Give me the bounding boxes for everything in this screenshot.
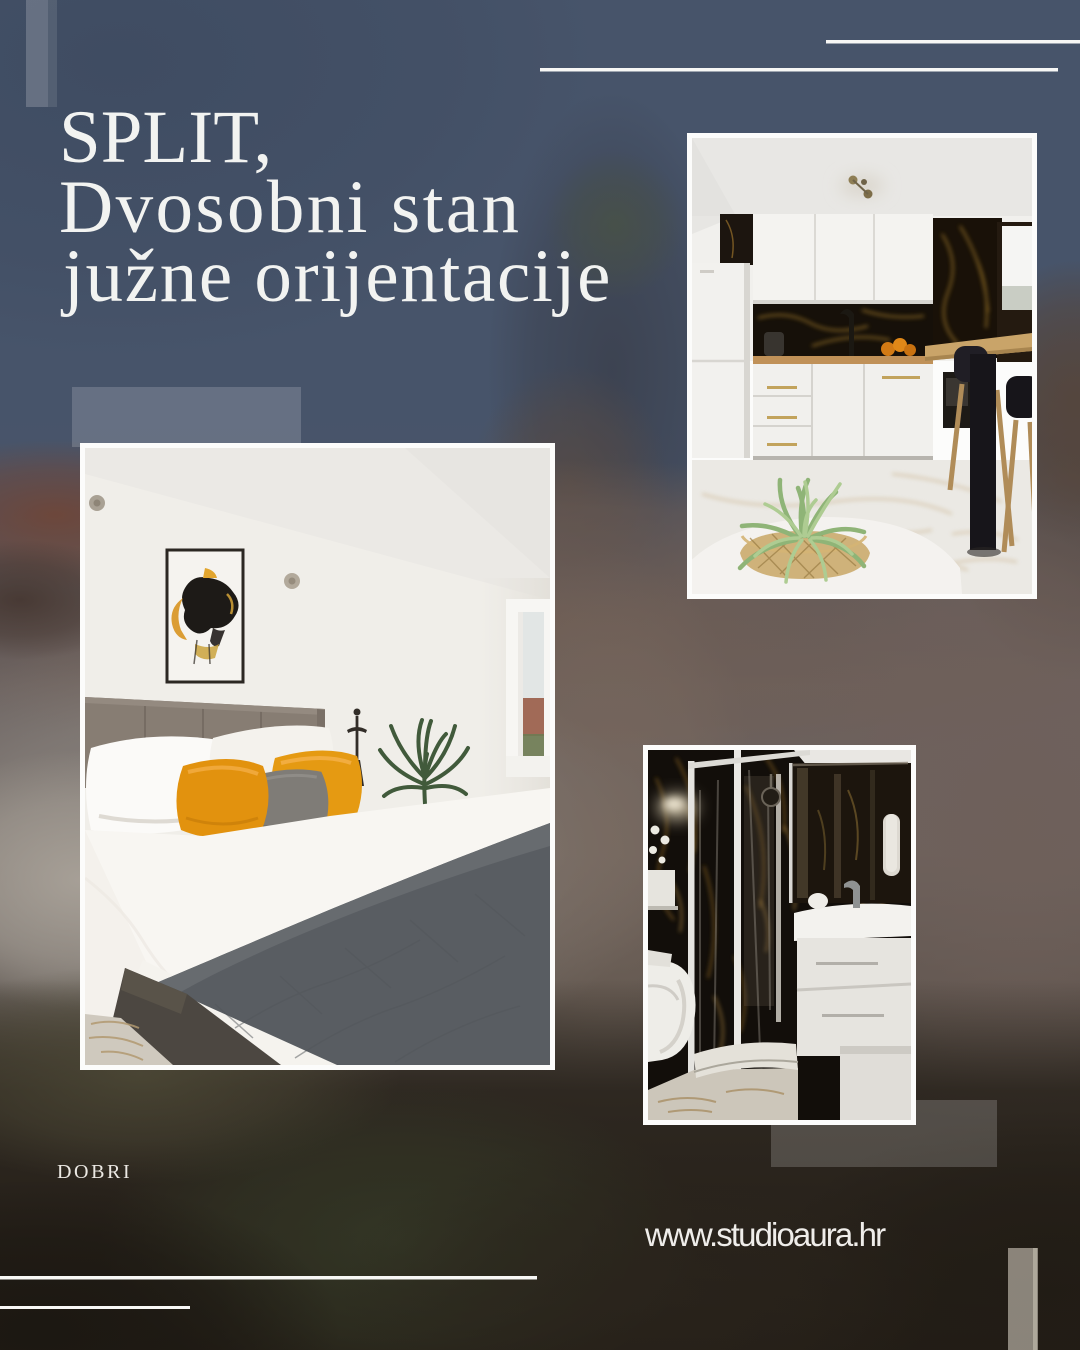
svg-text:www.studioaura.hr: www.studioaura.hr bbox=[644, 1216, 886, 1253]
svg-text:južne orijentacije: južne orijentacije bbox=[60, 235, 612, 318]
svg-text:DOBRI: DOBRI bbox=[57, 1161, 132, 1183]
